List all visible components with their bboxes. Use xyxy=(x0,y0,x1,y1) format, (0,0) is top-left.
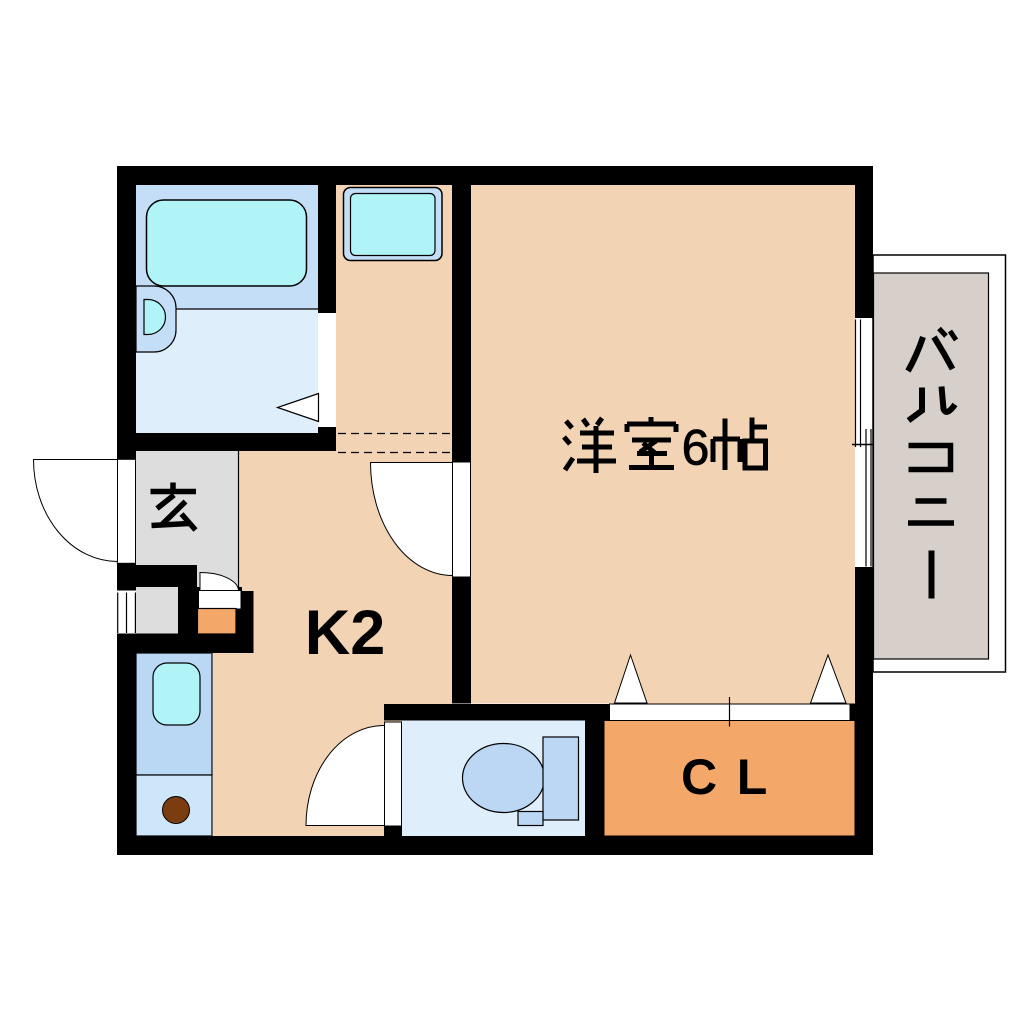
svg-text:K2: K2 xyxy=(305,598,386,668)
svg-text:C: C xyxy=(681,749,717,805)
svg-text:L: L xyxy=(737,749,768,805)
svg-text:6: 6 xyxy=(682,420,710,476)
